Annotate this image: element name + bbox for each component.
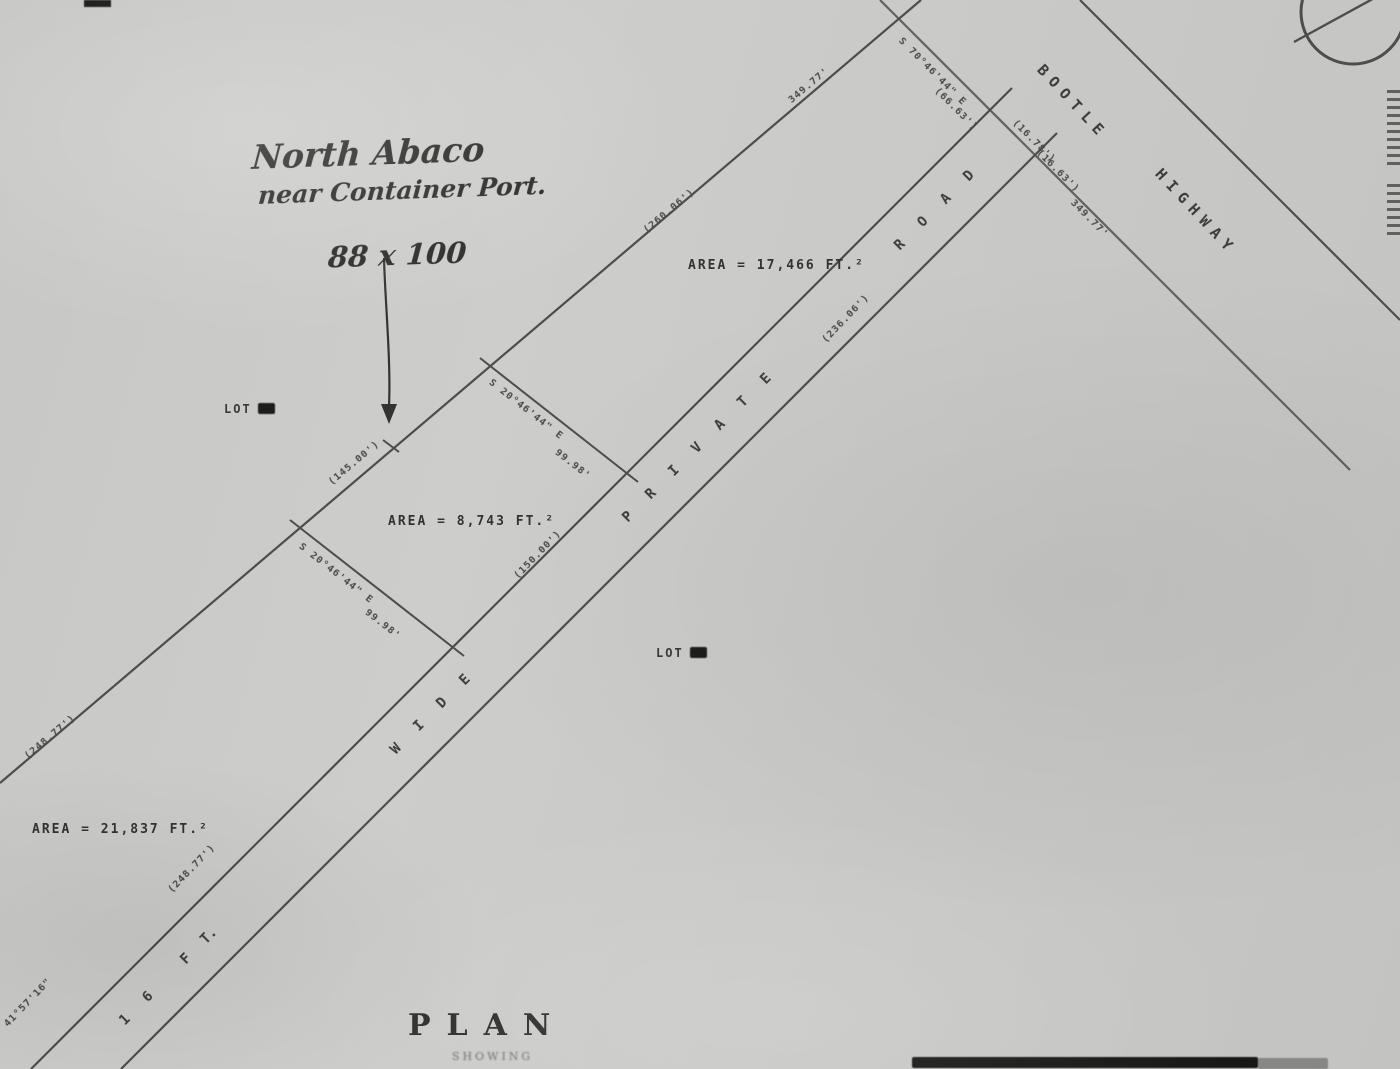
hand-arrow (384, 258, 389, 406)
lot-number-blob (258, 403, 275, 414)
lot-area-label: AREA = 8,743 FT.² (388, 514, 555, 529)
lot-area-label: AREA = 21,837 FT.² (32, 822, 209, 837)
lot-marker: LOT (224, 402, 275, 416)
handwritten-lot-dimensions: 88 x 100 (327, 236, 468, 275)
lot-marker-text: LOT (224, 402, 252, 416)
division-line-2 (290, 520, 464, 656)
right-margin-ticks (1387, 90, 1400, 168)
lot-number-blob (690, 647, 707, 658)
scan-artifact-top (84, 0, 111, 7)
highway-edge-far (1080, 0, 1400, 320)
compass-crosshair (1294, 0, 1400, 42)
scan-artifact-bar-fade (1258, 1058, 1328, 1069)
hand-arrow-head (381, 404, 397, 424)
division-line-1 (480, 358, 638, 482)
scanned-survey-plan: North Abaco near Container Port. 88 x 10… (0, 0, 1400, 1069)
plan-title: PLAN (408, 1008, 566, 1043)
lot-marker-text: LOT (656, 646, 684, 660)
boundary-line-nw (0, 0, 921, 783)
highway-edge-near (880, 0, 1350, 470)
lot-area-label: AREA = 17,466 FT.² (688, 258, 865, 273)
lot-marker: LOT (656, 646, 707, 660)
plan-linework (0, 0, 1400, 1069)
compass-rose-icon (1301, 0, 1400, 64)
plan-subtitle: SHOWING (452, 1050, 533, 1063)
right-margin-ticks (1387, 184, 1400, 238)
handwritten-location-line1: North Abaco (251, 130, 486, 177)
road-edge-lower (121, 133, 1057, 1069)
scan-artifact-bar (912, 1057, 1258, 1068)
